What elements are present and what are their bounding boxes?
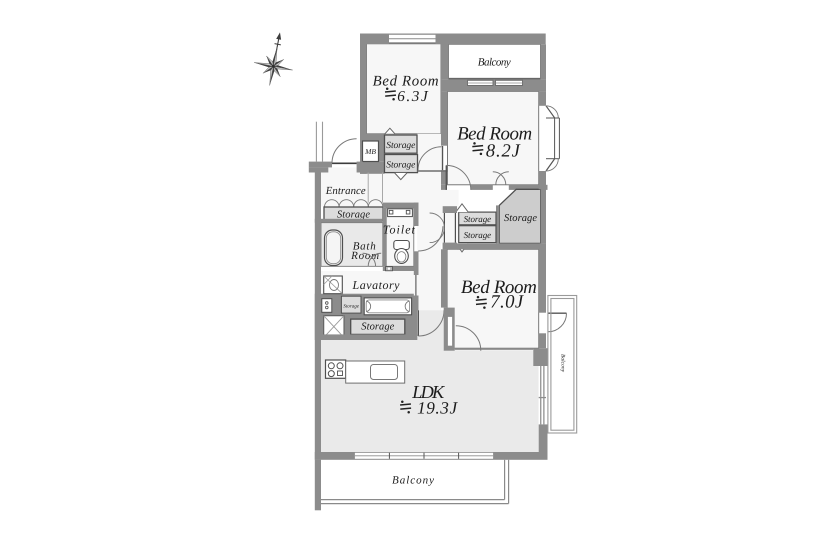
svg-text:Room: Room <box>350 250 379 262</box>
svg-text:Storage: Storage <box>386 160 415 170</box>
svg-text:Storage: Storage <box>386 141 415 151</box>
svg-text:Balcony: Balcony <box>392 474 434 486</box>
svg-text:7.0J: 7.0J <box>490 292 525 313</box>
svg-text:Storage: Storage <box>504 213 537 224</box>
svg-text:Storage: Storage <box>464 214 492 224</box>
svg-text:Toilet: Toilet <box>383 223 416 237</box>
svg-text:Storage: Storage <box>343 304 359 310</box>
svg-text:Lavatory: Lavatory <box>352 278 401 292</box>
svg-text:8.2J: 8.2J <box>486 142 521 162</box>
svg-text:Entrance: Entrance <box>325 185 366 197</box>
svg-text:Storage: Storage <box>361 322 394 333</box>
svg-text:Balcony: Balcony <box>478 56 511 68</box>
svg-text:19.3J: 19.3J <box>417 398 458 417</box>
svg-text:MB: MB <box>364 147 376 156</box>
svg-text:Storage: Storage <box>464 230 492 240</box>
svg-text:Storage: Storage <box>337 209 370 220</box>
svg-text:Balcony: Balcony <box>560 354 566 373</box>
svg-text:6.3J: 6.3J <box>397 88 429 105</box>
